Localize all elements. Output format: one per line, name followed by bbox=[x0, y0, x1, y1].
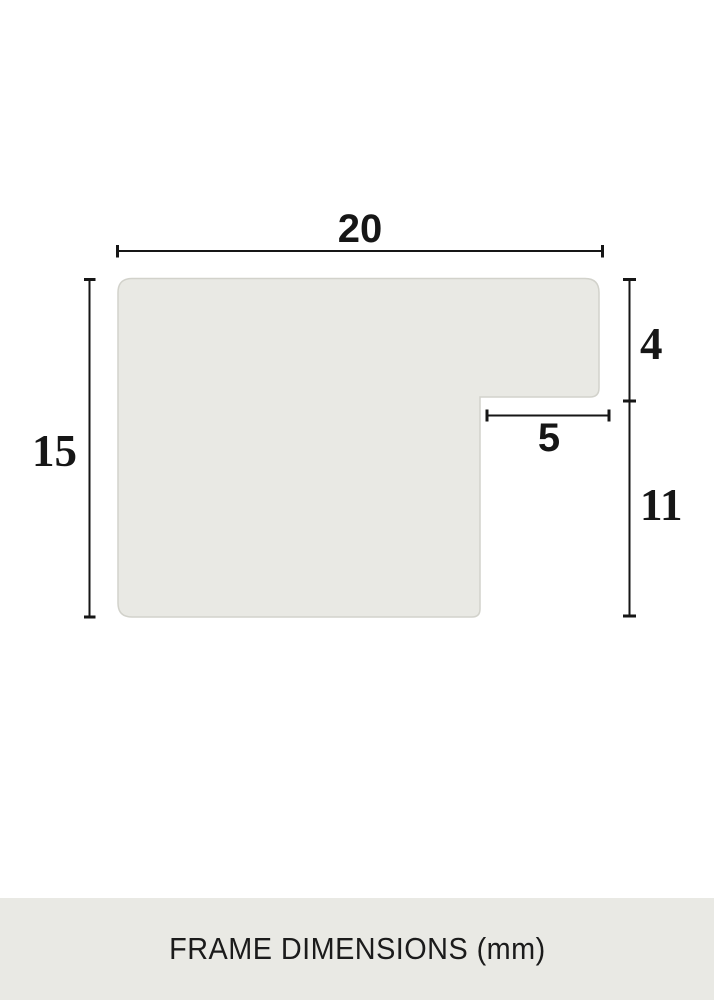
right-upper-height-label: 4 bbox=[640, 319, 663, 369]
top-width-label: 20 bbox=[338, 207, 383, 251]
footer-bar: FRAME DIMENSIONS (mm) bbox=[0, 898, 714, 1000]
frame-profile-shape bbox=[118, 279, 599, 618]
left-height-label: 15 bbox=[32, 426, 77, 476]
diagram-canvas: 20 15 4 5 11 bbox=[0, 0, 714, 898]
right-lower-height-label: 11 bbox=[640, 480, 683, 530]
footer-caption: FRAME DIMENSIONS (mm) bbox=[169, 931, 546, 967]
notch-width-label: 5 bbox=[538, 416, 560, 460]
